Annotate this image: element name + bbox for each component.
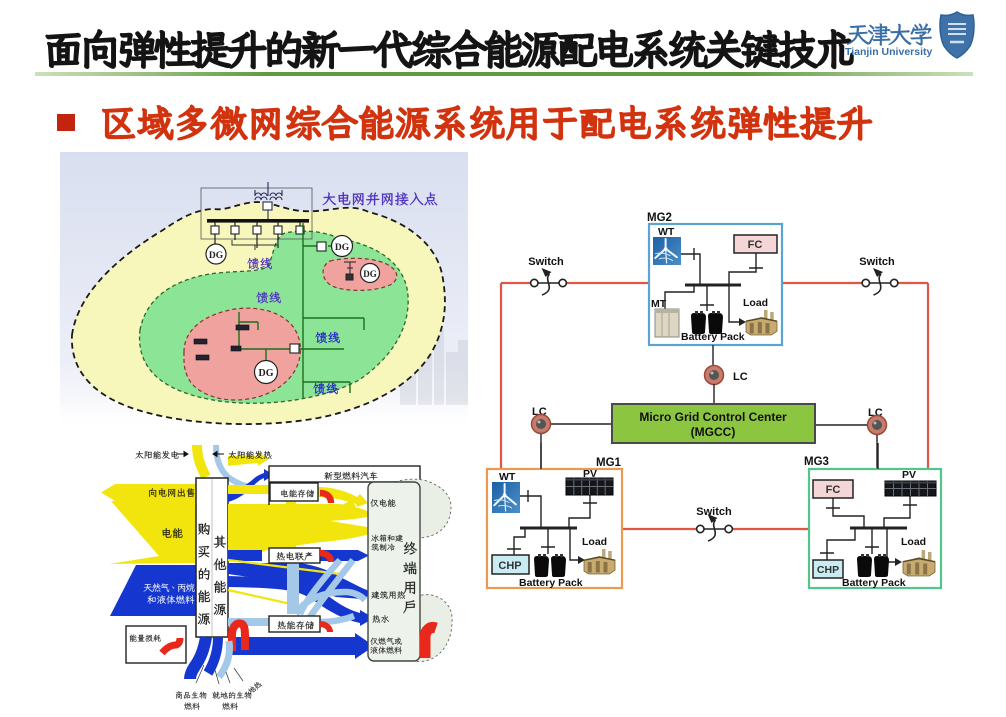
svg-text:(MGCC): (MGCC) (691, 425, 736, 439)
svg-text:Load: Load (901, 536, 926, 548)
svg-text:DG: DG (335, 243, 350, 253)
svg-text:DG: DG (209, 251, 224, 261)
svg-text:DG: DG (259, 368, 274, 379)
svg-text:DG: DG (363, 269, 377, 279)
svg-text:Switch: Switch (696, 506, 732, 518)
svg-text:WT: WT (658, 226, 675, 238)
svg-text:Micro Grid Control Center: Micro Grid Control Center (639, 410, 787, 424)
svg-text:CHP: CHP (498, 560, 521, 572)
svg-text:MG1: MG1 (596, 457, 622, 469)
svg-text:PV: PV (902, 469, 916, 481)
svg-text:Battery Pack: Battery Pack (519, 577, 583, 589)
svg-text:Battery Pack: Battery Pack (681, 331, 745, 343)
svg-text:Battery Pack: Battery Pack (842, 577, 906, 589)
svg-text:Load: Load (743, 297, 768, 309)
svg-text:WT: WT (499, 471, 516, 483)
svg-text:MT: MT (651, 298, 667, 310)
svg-text:Tianjin University: Tianjin University (845, 46, 932, 58)
svg-text:Load: Load (582, 536, 607, 548)
svg-text:MG2: MG2 (647, 212, 672, 224)
svg-text:Switch: Switch (859, 256, 895, 268)
svg-text:LC: LC (733, 371, 748, 383)
svg-text:MG3: MG3 (804, 456, 829, 468)
svg-text:FC: FC (826, 484, 841, 496)
svg-text:Switch: Switch (528, 256, 564, 268)
svg-text:CHP: CHP (817, 564, 839, 576)
svg-text:FC: FC (748, 239, 763, 251)
